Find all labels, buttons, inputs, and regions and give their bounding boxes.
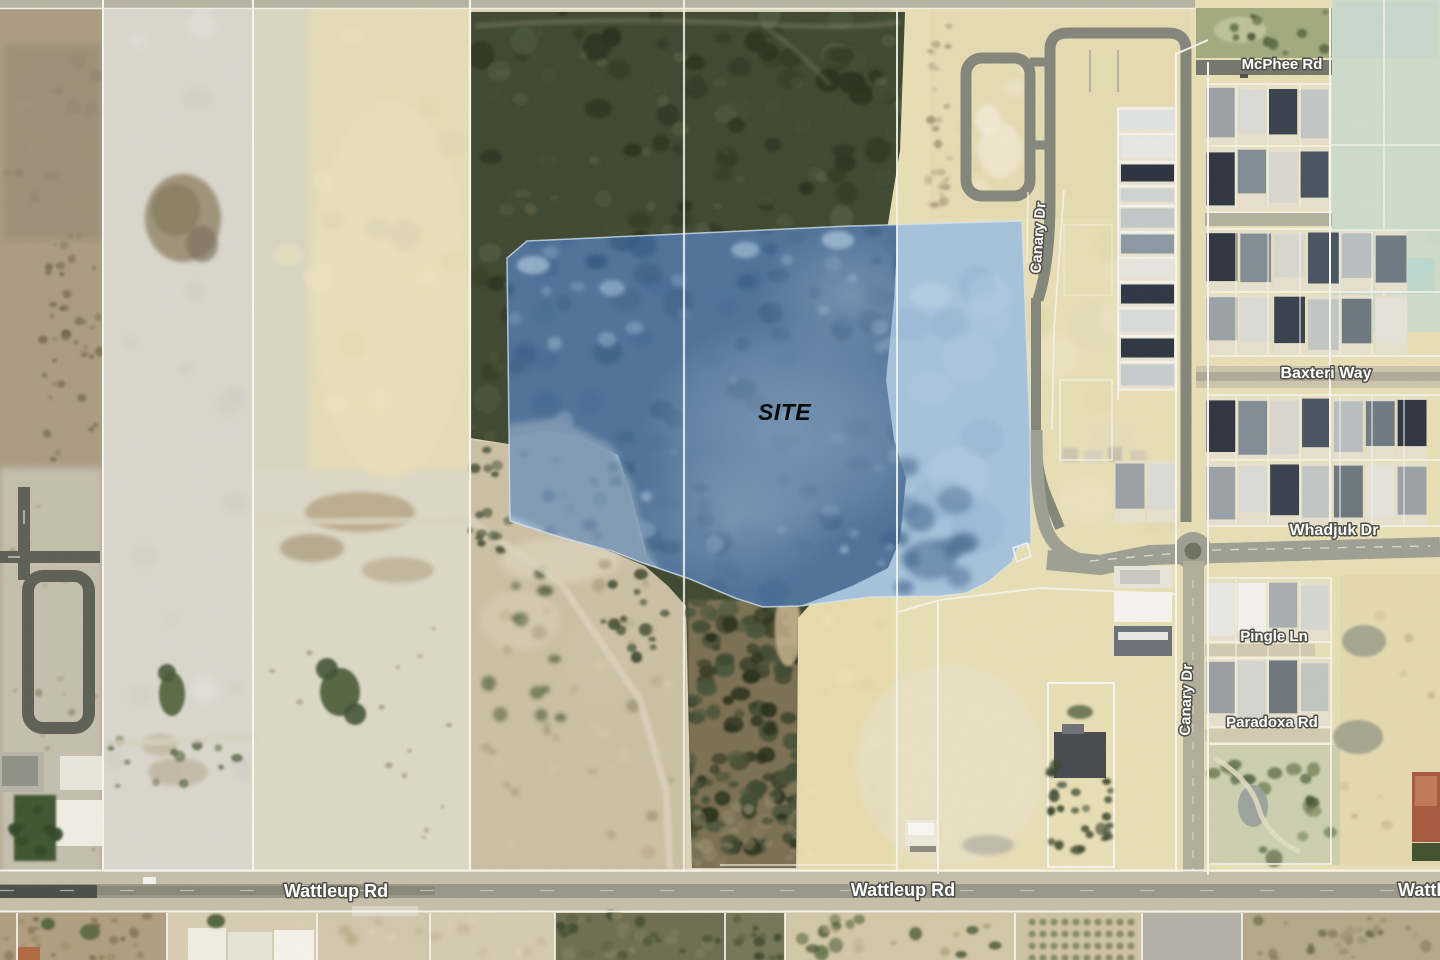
svg-text:Wattleup Rd: Wattleup Rd [851, 880, 955, 900]
svg-text:SITE: SITE [758, 399, 811, 425]
svg-text:Wattleup Rd: Wattleup Rd [284, 881, 388, 901]
svg-text:Canary Dr: Canary Dr [1177, 664, 1196, 736]
svg-text:Pingle Ln: Pingle Ln [1240, 628, 1308, 645]
svg-text:Paradoxa Rd: Paradoxa Rd [1226, 714, 1318, 731]
svg-text:Whadjuk Dr: Whadjuk Dr [1290, 522, 1379, 539]
svg-text:McPhee Rd: McPhee Rd [1242, 56, 1323, 73]
svg-text:Wattleup Rd: Wattleup Rd [1398, 880, 1440, 900]
svg-text:Baxteri Way: Baxteri Way [1281, 365, 1372, 382]
